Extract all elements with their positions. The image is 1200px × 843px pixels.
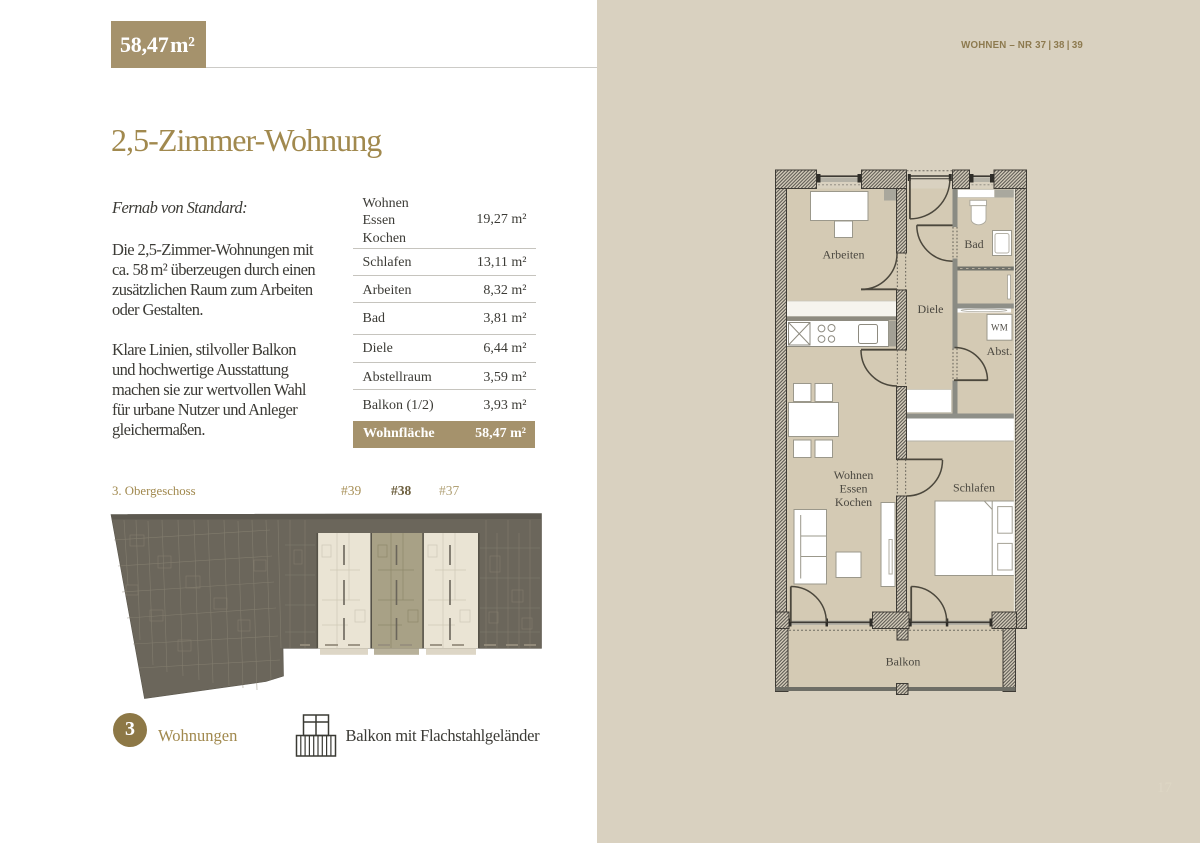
svg-text:Diele: Diele — [918, 302, 944, 316]
svg-text:Bad: Bad — [964, 237, 983, 251]
svg-text:Schlafen: Schlafen — [953, 480, 995, 494]
svg-text:Essen: Essen — [840, 482, 868, 496]
svg-text:Kochen: Kochen — [835, 495, 872, 509]
svg-text:Balkon: Balkon — [886, 654, 921, 668]
svg-text:Wohnen: Wohnen — [834, 468, 874, 482]
svg-text:Arbeiten: Arbeiten — [823, 248, 865, 262]
svg-text:WM: WM — [991, 323, 1008, 333]
svg-text:Abst.: Abst. — [987, 344, 1013, 358]
